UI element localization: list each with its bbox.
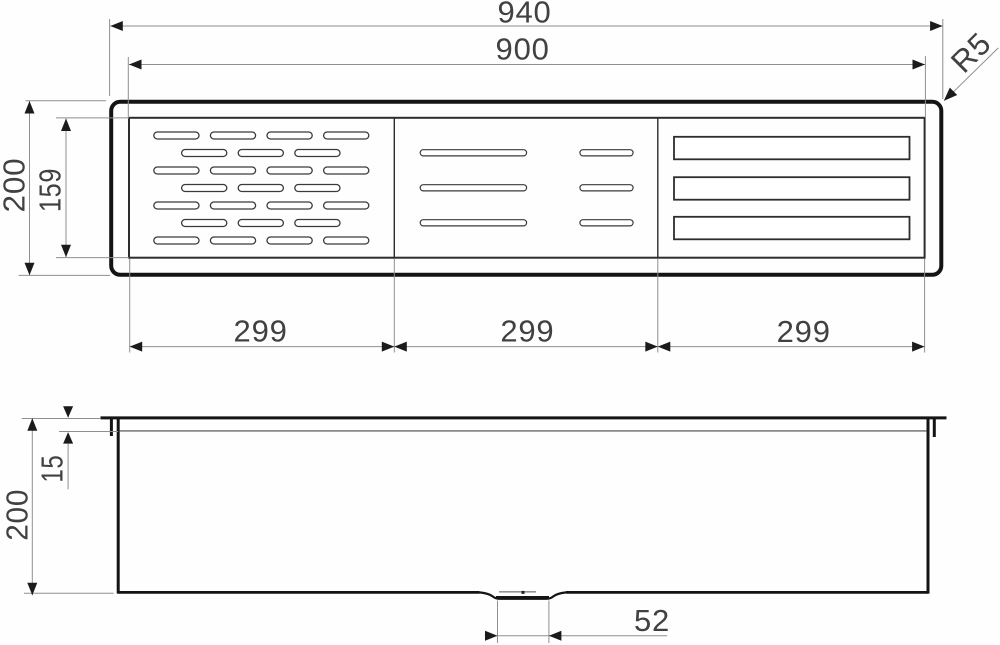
svg-text:299: 299 xyxy=(777,314,831,349)
svg-text:200: 200 xyxy=(0,489,35,541)
svg-text:200: 200 xyxy=(0,158,32,213)
svg-text:52: 52 xyxy=(634,603,670,638)
svg-text:15: 15 xyxy=(35,455,70,483)
svg-text:900: 900 xyxy=(496,32,550,67)
svg-text:299: 299 xyxy=(234,314,288,349)
svg-text:940: 940 xyxy=(497,0,551,30)
svg-text:299: 299 xyxy=(500,314,554,349)
svg-text:R5: R5 xyxy=(944,26,998,80)
svg-text:159: 159 xyxy=(32,168,67,212)
